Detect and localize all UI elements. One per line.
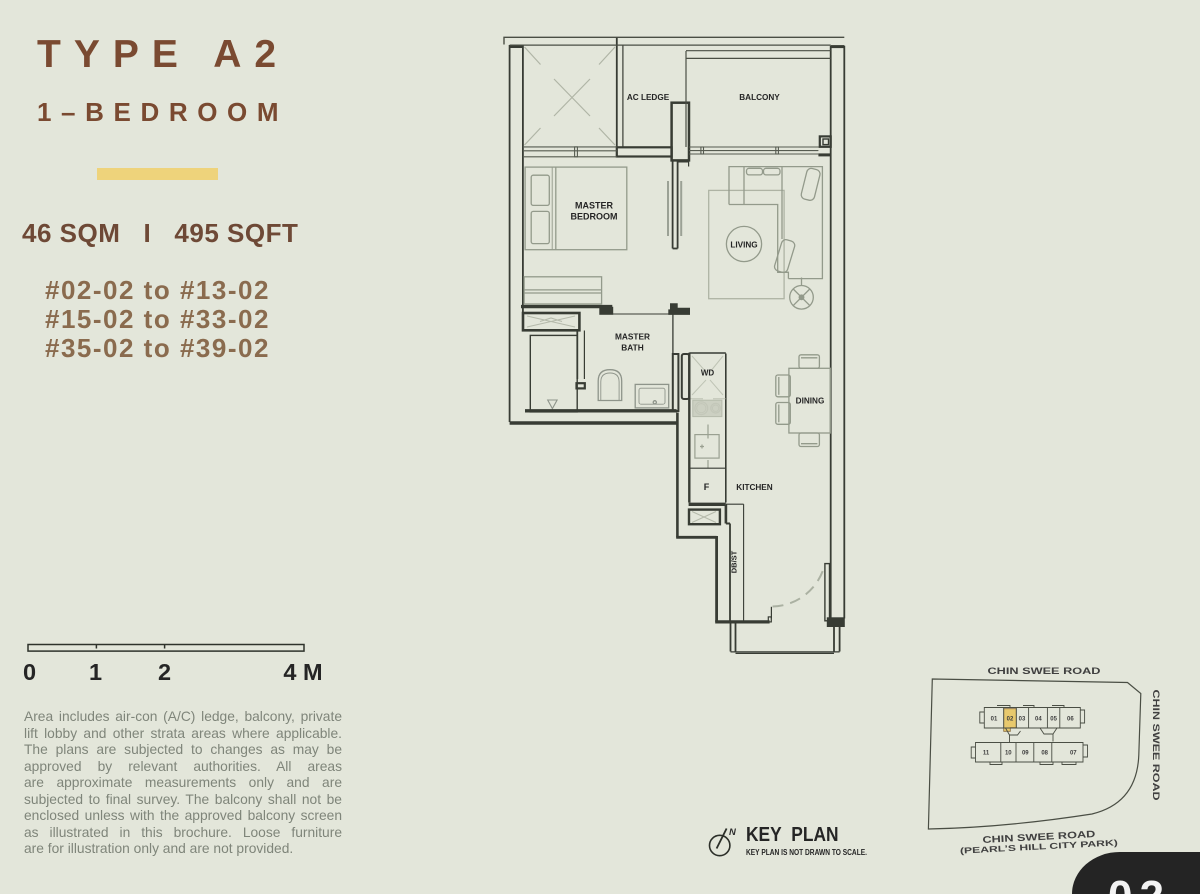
svg-text:CHIN SWEE ROAD: CHIN SWEE ROAD (988, 666, 1101, 677)
svg-text:01: 01 (991, 717, 998, 723)
svg-text:09: 09 (1022, 751, 1029, 757)
svg-text:4 M: 4 M (283, 659, 322, 685)
svg-text:03: 03 (1019, 717, 1026, 723)
svg-text:BATH: BATH (621, 343, 643, 353)
svg-text:LIVING: LIVING (730, 241, 757, 250)
svg-text:BALCONY: BALCONY (739, 93, 780, 102)
svg-text:N: N (729, 827, 737, 838)
svg-text:0: 0 (23, 659, 36, 685)
svg-text:CHIN SWEE ROAD: CHIN SWEE ROAD (1150, 690, 1161, 801)
svg-text:F: F (704, 482, 710, 492)
svg-text:KEY PLAN IS NOT DRAWN TO SCALE: KEY PLAN IS NOT DRAWN TO SCALE. (746, 847, 867, 857)
svg-text:DINING: DINING (796, 397, 825, 406)
svg-text:10: 10 (1005, 751, 1012, 757)
svg-text:AC LEDGE: AC LEDGE (627, 93, 670, 102)
svg-text:11: 11 (983, 751, 990, 757)
svg-text:KITCHEN: KITCHEN (736, 483, 772, 492)
svg-text:BEDROOM: BEDROOM (571, 212, 618, 222)
svg-text:04: 04 (1035, 717, 1042, 723)
svg-text:WD: WD (701, 369, 715, 378)
svg-text:08: 08 (1041, 751, 1048, 757)
svg-text:KEY PLAN: KEY PLAN (746, 823, 839, 846)
svg-text:1: 1 (89, 659, 102, 685)
svg-text:05: 05 (1050, 717, 1057, 723)
svg-text:07: 07 (1070, 751, 1077, 757)
svg-text:MASTER: MASTER (575, 201, 614, 211)
svg-text:MASTER: MASTER (615, 332, 650, 342)
svg-text:2: 2 (158, 659, 171, 685)
svg-text:02: 02 (1007, 717, 1014, 723)
svg-text:06: 06 (1067, 717, 1074, 723)
svg-text:DB/ST: DB/ST (730, 550, 739, 573)
